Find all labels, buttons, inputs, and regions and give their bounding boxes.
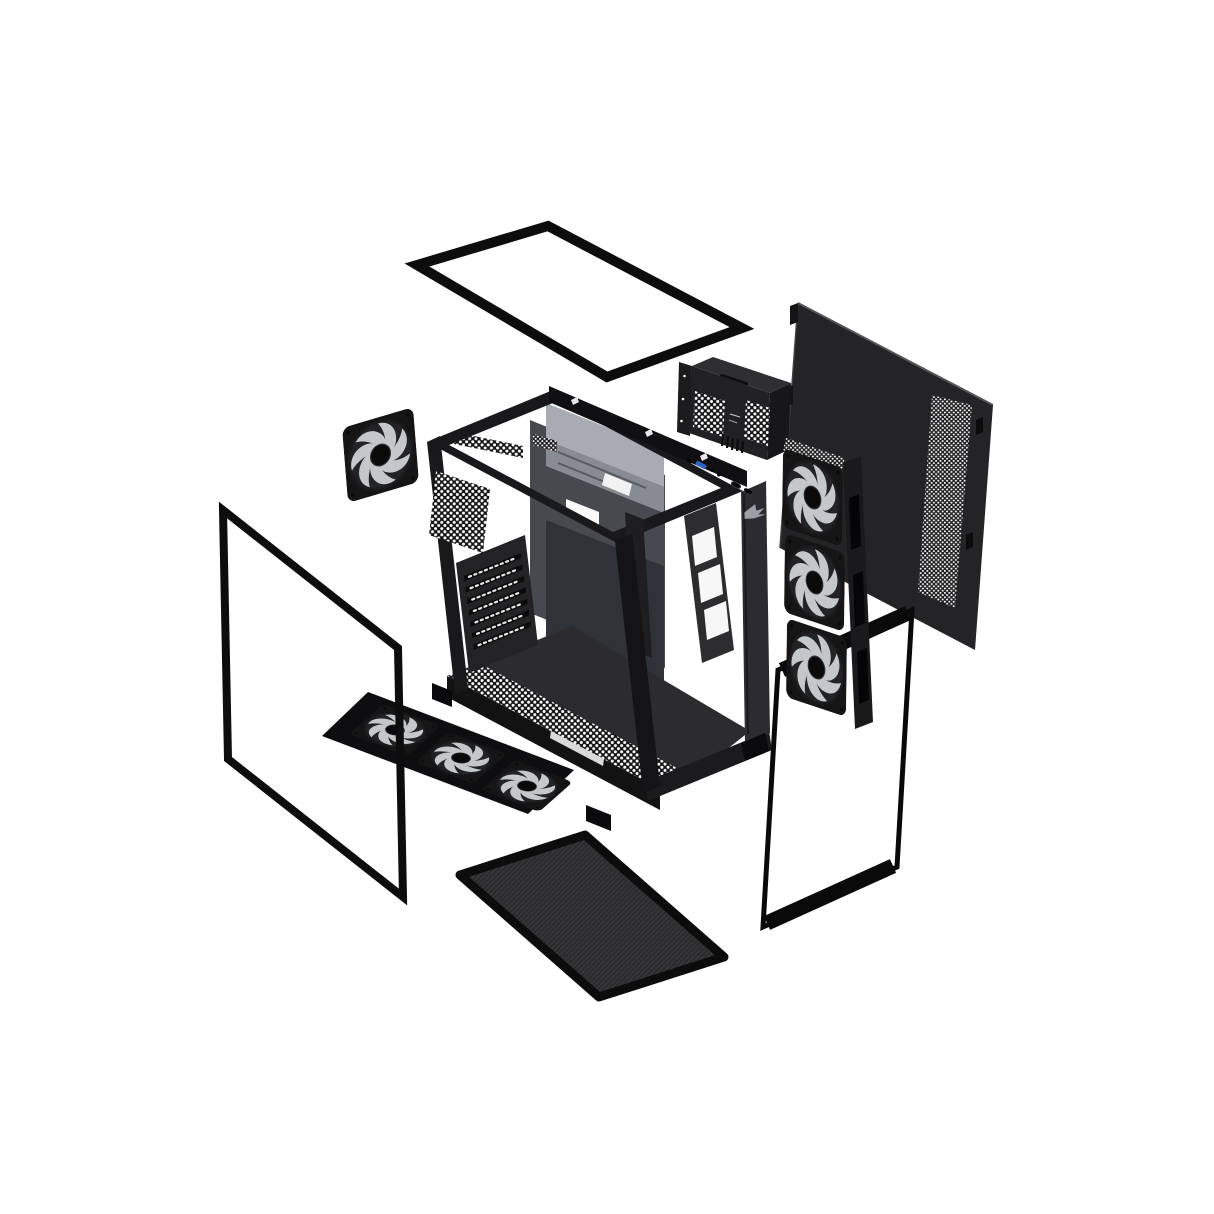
rear-cutout (490, 519, 500, 531)
led-indicator (711, 469, 714, 472)
psu-bracket-vent-right (744, 400, 770, 446)
fan-rail-slot (853, 571, 865, 627)
fan-rail-slot (857, 648, 869, 704)
top-glass-frame (417, 226, 742, 377)
panel-latch-slot (966, 532, 973, 550)
top-glass-panel (417, 226, 742, 377)
psu-bracket (677, 357, 791, 460)
dust-filter-mesh (460, 835, 724, 997)
side-fan-stack (782, 438, 873, 729)
product-image (0, 0, 1214, 1214)
rear-exhaust-fan (342, 407, 419, 503)
fan-rail-slot (849, 494, 861, 550)
screw-hole (680, 420, 683, 423)
audio-jack (717, 473, 721, 477)
front-glass-bottom-bar (767, 866, 893, 923)
panel-mount-tab (790, 303, 798, 325)
panel-latch-slot (976, 417, 983, 435)
case-foot (586, 805, 611, 831)
side-fan-3 (786, 618, 847, 717)
screw-hole (683, 375, 686, 378)
bottom-dust-filter (460, 835, 724, 997)
screw-hole (682, 398, 685, 401)
